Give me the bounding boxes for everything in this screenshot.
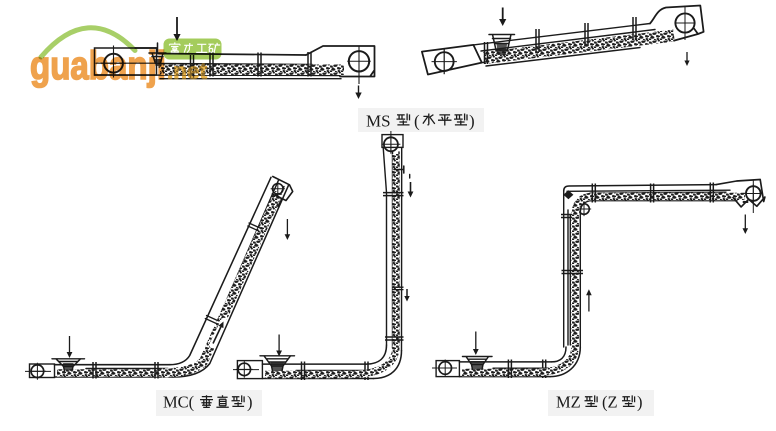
svg-text:.net: .net [167,58,207,84]
svg-text:): ) [637,393,643,412]
svg-text:): ) [247,393,253,412]
svg-text:): ) [469,112,475,131]
svg-text:(Z: (Z [602,393,618,412]
svg-text:guabanji: guabanji [30,44,166,88]
svg-text:MC(: MC( [163,393,194,412]
svg-text:MS: MS [366,112,391,131]
svg-text:(: ( [414,112,420,131]
svg-text:MZ: MZ [556,393,581,412]
